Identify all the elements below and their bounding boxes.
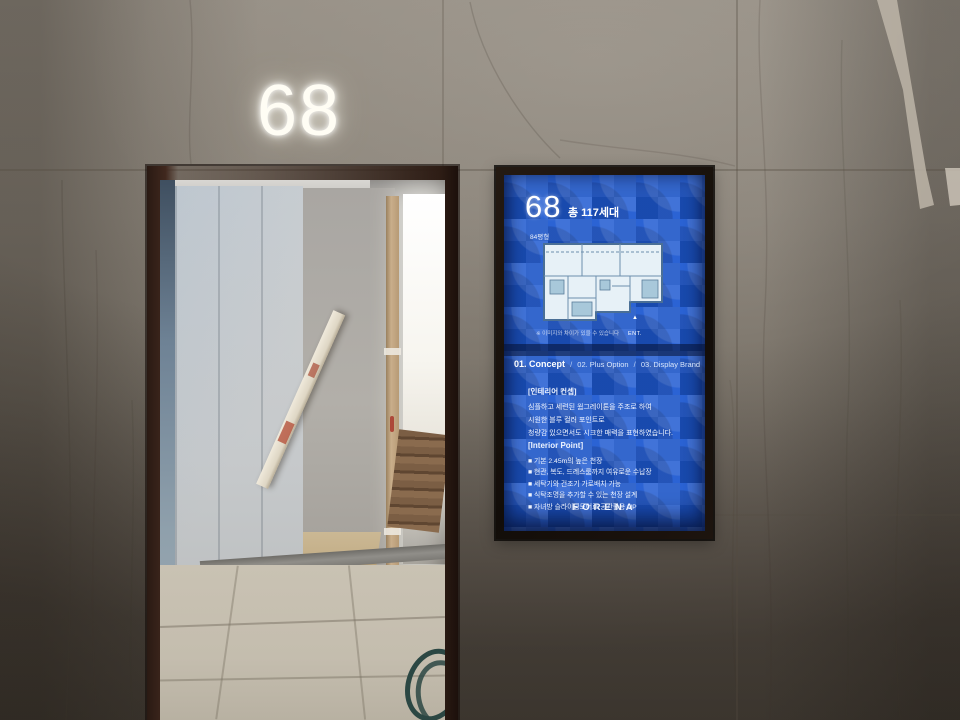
door-frame bbox=[147, 166, 458, 720]
floor-number: 68 bbox=[525, 189, 561, 225]
coiled-hose bbox=[406, 642, 445, 720]
door-opening bbox=[160, 180, 445, 720]
section-divider-band bbox=[504, 344, 705, 356]
tab-separator: / bbox=[634, 360, 636, 369]
concept-line: 청량감 있으면서도 시크한 매력을 표현하였습니다. bbox=[528, 427, 673, 440]
signage-display: 68 총 117세대 84평형 bbox=[496, 167, 713, 539]
tape-bit bbox=[384, 528, 401, 535]
interior-point-heading: [Interior Point] bbox=[528, 441, 583, 450]
brand-logo: FORENA bbox=[504, 502, 705, 513]
floorplan-caption: ※ 이미지와 차이가 있을 수 있습니다 bbox=[536, 329, 619, 337]
concept-line: 심플하고 세련된 웜그레이톤을 주조로 하여 bbox=[528, 401, 673, 414]
triangle-up-icon: ▲ bbox=[628, 315, 642, 322]
floorplan-diagram bbox=[542, 242, 664, 322]
wall-number-sign: 68 bbox=[244, 70, 354, 152]
tab-display-brand[interactable]: 03. Display Brand bbox=[641, 360, 700, 369]
interior-point-item: ■ 식탁조명을 추가할 수 있는 천장 설계 bbox=[528, 490, 652, 501]
unit-count: 총 117세대 bbox=[568, 204, 619, 220]
tab-bar: 01. Concept / 02. Plus Option / 03. Disp… bbox=[514, 359, 704, 369]
grout-lines bbox=[0, 0, 960, 720]
tab-separator: / bbox=[570, 360, 572, 369]
corridor-wall bbox=[303, 188, 395, 578]
interior-point-item: ■ 세탁기와 건조기 가로배치 가능 bbox=[528, 479, 652, 490]
tile-floor bbox=[160, 565, 445, 720]
concept-heading: [인테리어 컨셉] bbox=[528, 386, 576, 397]
interior-point-item: ■ 기본 2.45m의 높은 천장 bbox=[528, 456, 652, 467]
signage-screen: 68 총 117세대 84평형 bbox=[504, 175, 705, 531]
concept-lines: 심플하고 세련된 웜그레이톤을 주조로 하여 시원한 블루 컬러 포인트로 청량… bbox=[528, 401, 673, 440]
tape-bit bbox=[384, 348, 401, 355]
tab-plus-option[interactable]: 02. Plus Option bbox=[577, 360, 628, 369]
photo-elevator-hall: 68 68 총 117세대 84평형 bbox=[0, 0, 960, 720]
concept-line: 시원한 블루 컬러 포인트로 bbox=[528, 414, 673, 427]
unit-type-label: 84평형 bbox=[530, 231, 549, 241]
interior-point-item: ■ 현관, 복도, 드레스룸까지 여유로운 수납장 bbox=[528, 467, 652, 478]
tab-concept[interactable]: 01. Concept bbox=[514, 359, 565, 369]
ent-marker: ▲ ENT. bbox=[628, 315, 642, 339]
red-tag bbox=[390, 416, 394, 432]
masking-tape-corner bbox=[945, 168, 960, 206]
masking-tape-strip bbox=[877, 0, 934, 209]
marble-veins-layer bbox=[0, 0, 960, 720]
